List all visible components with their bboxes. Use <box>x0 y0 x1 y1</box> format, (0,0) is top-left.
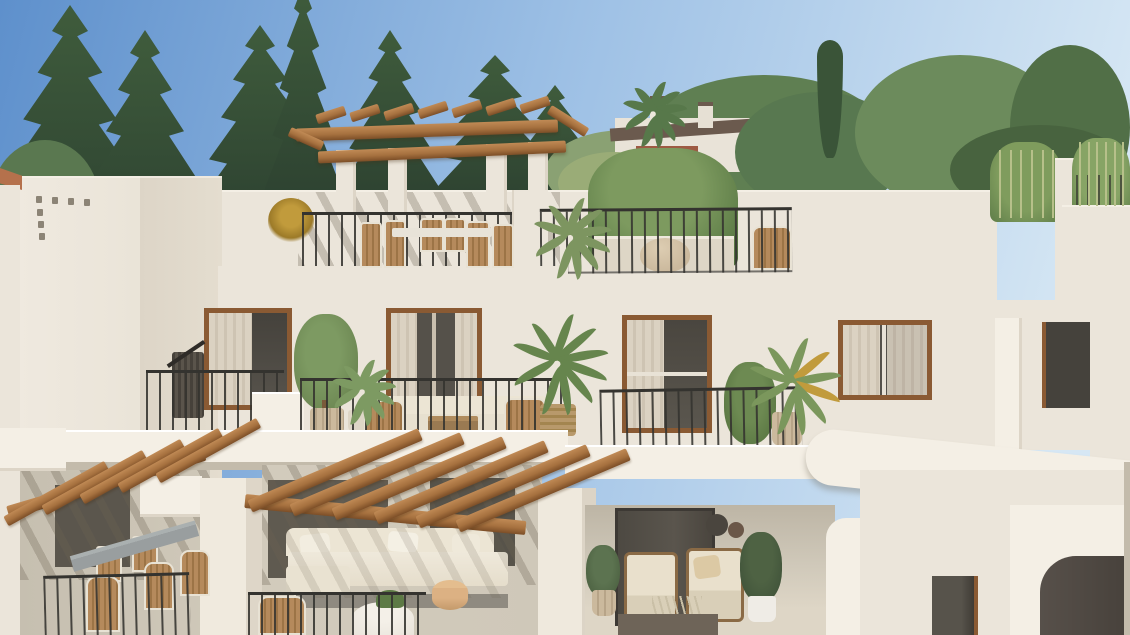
chimney <box>698 102 713 128</box>
vent-hole <box>38 221 44 228</box>
bamboo-stem <box>1114 142 1116 206</box>
pillar-capital <box>140 476 202 517</box>
vent-hole <box>36 196 42 203</box>
vent-hole <box>39 233 45 240</box>
terrace-column <box>538 488 582 635</box>
bamboo-stem <box>1042 150 1044 218</box>
architectural-render-scene <box>0 0 1130 635</box>
terrace-railing <box>248 592 426 635</box>
parapet-pillar <box>995 318 1022 460</box>
bamboo-stem <box>1010 150 1012 218</box>
pergola-shadow <box>286 528 508 598</box>
rooftop-dining-table <box>392 228 492 237</box>
bamboo-stem <box>1088 142 1090 206</box>
wall-plate-decor <box>706 514 728 536</box>
arch-opening <box>1040 556 1130 635</box>
bamboo-stem <box>1031 150 1033 218</box>
bamboo-stem <box>1122 142 1124 206</box>
rooftop-dining-chair <box>360 222 382 268</box>
window-4 <box>838 320 932 400</box>
window-sliver-dark <box>1042 322 1096 408</box>
bamboo-stem <box>1096 142 1098 206</box>
window-curtain <box>843 325 880 395</box>
vent-hole <box>52 197 58 204</box>
vent-hole <box>68 198 74 205</box>
window-curtain <box>887 325 927 395</box>
bamboo-stem <box>1079 142 1081 206</box>
window-transom-bar <box>627 372 707 376</box>
pillar-capital <box>0 428 66 471</box>
rooftop-dining-chair <box>492 224 514 268</box>
patio-plant-tall <box>740 532 782 602</box>
terrace-railing <box>43 572 191 635</box>
window-mullion <box>882 325 886 395</box>
patio-dark-table <box>618 614 718 635</box>
far-right-wall <box>1090 322 1130 462</box>
bamboo-stem <box>1105 142 1107 206</box>
wall-plate-decor <box>728 522 744 538</box>
bamboo-stem <box>1052 150 1054 218</box>
vent-hole <box>37 209 43 216</box>
patio-plant-pot <box>592 590 616 616</box>
armchair-pillow <box>693 554 722 579</box>
bamboo-stem <box>1020 150 1022 218</box>
small-dark-window <box>932 576 978 635</box>
wooden-stool <box>432 580 468 610</box>
arch-shade-edge <box>1124 462 1130 635</box>
left-edge-wall <box>0 185 20 635</box>
patio-plant-pot-white <box>748 596 776 622</box>
bamboo-stem <box>999 150 1001 218</box>
vent-hole <box>84 199 90 206</box>
